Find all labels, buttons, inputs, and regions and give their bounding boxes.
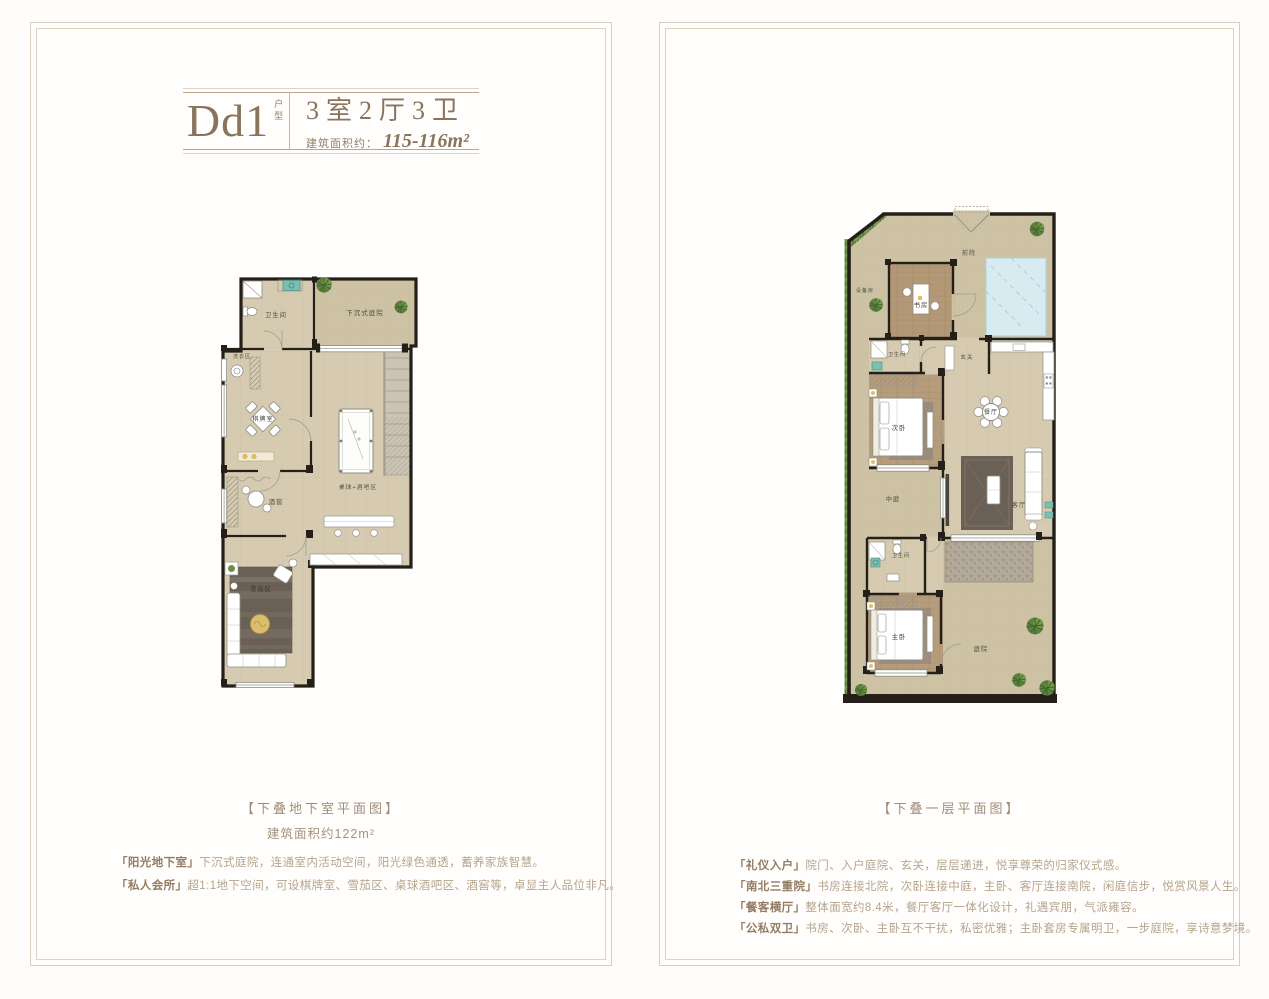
plant-icon [316,277,331,292]
unit-code-suffix: 户型 [272,99,285,123]
room-label-master-bathroom: 卫生间 [892,552,910,559]
left-panel: Dd1 户型 3室2厅3卫 建筑面积约： 115-116m² [30,22,612,966]
right-plan-caption: 【下叠一层平面图】 [660,798,1239,817]
unit-code-cell: Dd1 户型 [183,93,290,149]
feature-desc: 书房、次卧、主卧互不干扰，私密优雅；主卧套房专属明卫，一步庭院，享诗意梦境。 [805,923,1257,935]
terrace [945,542,1033,582]
room-label-courtyard: 庭院 [974,644,989,653]
plant-icon [855,684,867,696]
basement-floorplan: 卫生间 下沉式庭院 洗衣区 棋牌室 酒窖 桌球+酒吧区 雪茄区 [198,267,428,691]
water-feature [986,258,1046,336]
feature-name: 「阳光地下室」 [116,857,199,869]
feature-item: 「礼仪入户」院门、入户庭院、玄关，层层递进，悦享尊荣的归家仪式感。 [734,856,1258,877]
feature-item: 「公私双卫」书房、次卧、主卧互不干扰，私密优雅；主卧套房专属明卫，一步庭院，享诗… [734,919,1258,940]
room-label-cigar-area: 雪茄区 [250,584,272,593]
room-label-atrium: 中庭 [886,494,901,503]
wardrobe [869,596,917,606]
sideboard-icon [1045,512,1053,518]
room-label-bathroom: 卫生间 [888,351,906,358]
foyer-cabinet [945,346,954,370]
room-label-second-bedroom: 次卧 [892,423,907,432]
left-plan-caption-area: 建筑面积约122m² [31,823,611,842]
feature-name: 「礼仪入户」 [734,860,805,872]
right-feature-list: 「礼仪入户」院门、入户庭院、玄关，层层递进，悦享尊荣的归家仪式感。 「南北三重院… [734,856,1258,940]
pool-table [339,409,373,473]
room-label-living-room: 客厅 [1012,501,1026,509]
feature-desc: 整体面宽约8.4米，餐厅客厅一体化设计，礼遇宾朋，气派雍容。 [805,902,1143,914]
room-label-master-bedroom: 主卧 [892,632,907,641]
sideboard-icon [1045,502,1053,508]
plant-icon [1030,222,1044,236]
feature-item: 「阳光地下室」下沉式庭院，连通室内活动空间，阳光绿色通透，蓄养家族智慧。 [116,852,621,875]
wardrobe [871,375,917,385]
unit-code: Dd1 [187,98,269,144]
room-label-chess-room: 棋牌室 [252,415,273,423]
unit-area: 建筑面积约： 115-116m² [306,130,479,153]
sink-icon [283,281,300,291]
storage-cabinet [310,554,402,565]
unit-spec-cell: 3室2厅3卫 建筑面积约： 115-116m² [290,93,479,149]
feature-desc: 下沉式庭院，连通室内活动空间，阳光绿色通透，蓄养家族智慧。 [199,857,544,869]
plant-icon [395,301,408,314]
room-label-front-yard: 前院 [962,249,976,257]
plant-icon [869,298,883,312]
feature-name: 「南北三重院」 [734,881,817,893]
feature-item: 「餐客横厅」整体面宽约8.4米，餐厅客厅一体化设计，礼遇宾朋，气派雍容。 [734,898,1258,919]
room-label-foyer: 玄关 [960,353,973,361]
room-label-laundry: 洗衣区 [233,353,251,360]
room-label-bathroom: 卫生间 [265,310,287,319]
unit-area-value: 115-116m² [383,130,469,153]
feature-item: 「南北三重院」书房连接北院，次卧连接中庭，主卧、客厅连接南院，闲庭信步，悦赏风景… [734,877,1258,898]
room-label-equipment-room: 设备房 [856,287,874,294]
unit-header: Dd1 户型 3室2厅3卫 建筑面积约： 115-116m² [183,92,479,150]
room-label-billiard-bar: 桌球+酒吧区 [339,483,377,491]
room-label-study: 书房 [914,300,929,309]
plant-icon [1027,618,1044,635]
unit-area-label: 建筑面积约： [306,135,378,151]
left-plan-caption: 【下叠地下室平面图】 [31,798,611,817]
feature-name: 「公私双卫」 [734,923,805,935]
left-feature-list: 「阳光地下室」下沉式庭院，连通室内活动空间，阳光绿色通透，蓄养家族智慧。 「私人… [116,852,621,898]
room-label-wine-cellar: 酒窖 [269,497,284,506]
feature-desc: 书房连接北院，次卧连接中庭，主卧、客厅连接南院，闲庭信步，悦赏风景人生。 [817,881,1245,893]
right-panel: 设备房 前院 书房 卫生间 玄关 次卧 餐厅 中庭 客厅 卫生间 主卧 庭院 【… [659,22,1240,966]
feature-name: 「私人会所」 [116,880,187,892]
feature-item: 「私人会所」超1:1地下空间，可设棋牌室、雪茄区、桌球酒吧区、酒窖等，卓显主人品… [116,875,621,898]
stairs [385,347,411,475]
unit-layout: 3室2厅3卫 [306,90,479,127]
room-label-sunken-courtyard: 下沉式庭院 [346,308,384,317]
sink-icon [872,362,882,370]
feature-desc: 超1:1地下空间，可设棋牌室、雪茄区、桌球酒吧区、酒窖等，卓显主人品位非凡。 [187,880,621,892]
washer-icon [231,365,243,377]
feature-name: 「餐客横厅」 [734,902,805,914]
first-floor-floorplan: 设备房 前院 书房 卫生间 玄关 次卧 餐厅 中庭 客厅 卫生间 主卧 庭院 [841,206,1061,716]
sofa [1025,452,1042,516]
room-label-dining-room: 餐厅 [984,408,998,416]
brochure-page: Dd1 户型 3室2厅3卫 建筑面积约： 115-116m² [0,0,1269,999]
tv [946,474,950,526]
feature-desc: 院门、入户庭院、玄关，层层递进，悦享尊荣的归家仪式感。 [805,860,1126,872]
washer-icon [871,558,880,567]
plant-icon [1012,673,1026,687]
plant-icon [1039,680,1054,695]
